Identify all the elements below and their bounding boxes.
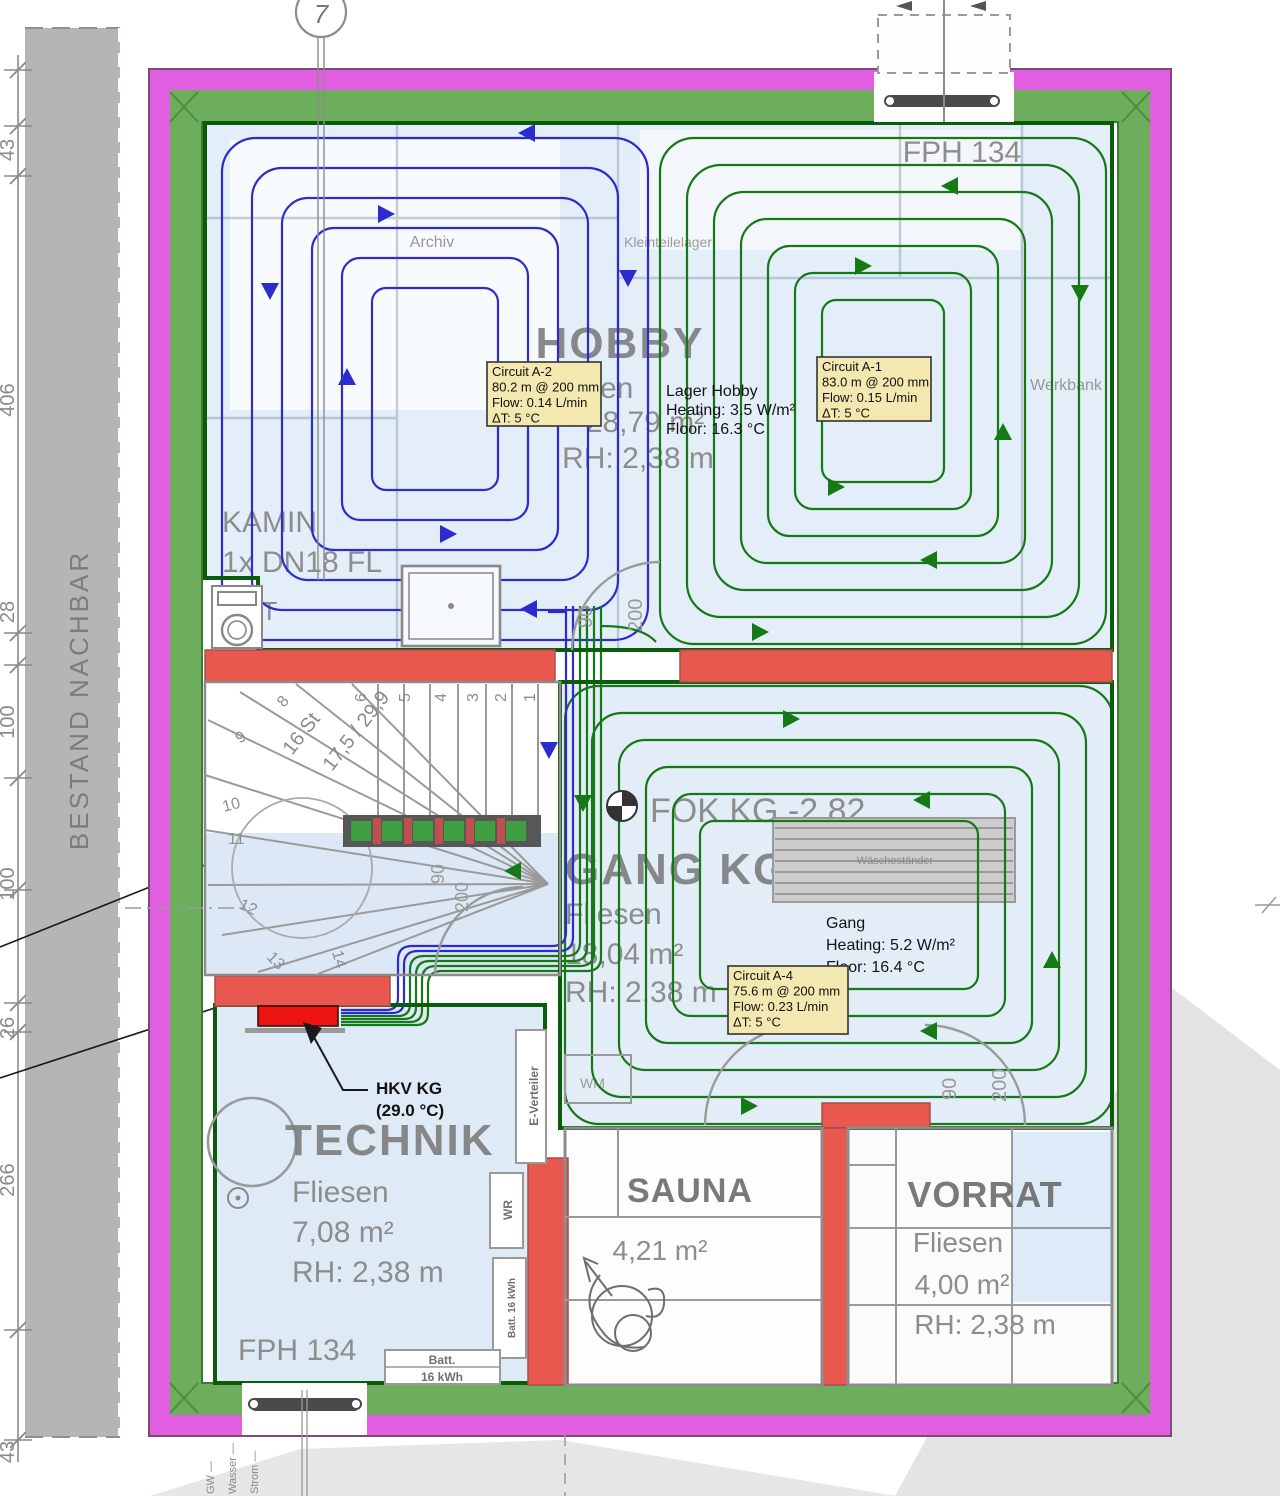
room-title-technik: TECHNIK xyxy=(285,1116,495,1165)
utility-label: GW — xyxy=(205,1461,217,1494)
dimension-value: 26 xyxy=(0,1017,19,1039)
wall-red-4 xyxy=(528,1158,568,1385)
wall-red-6 xyxy=(822,1128,848,1385)
vorrat-rh: RH: 2,38 m xyxy=(914,1309,1056,1340)
stair-step-number: 5 xyxy=(397,693,414,702)
neighbor-label: BESTAND NACHBAR xyxy=(64,550,94,850)
stat-line: Gang xyxy=(826,915,865,932)
vorrat-area: 4,00 m² xyxy=(915,1269,1010,1300)
hobby-rh: RH: 2,38 m xyxy=(562,442,714,475)
dimension-value: 100 xyxy=(0,867,19,900)
circuit-label-line: Circuit A-4 xyxy=(733,968,793,983)
stair-step-number: 3 xyxy=(465,693,482,702)
hkv-label-line1: HKV KG xyxy=(376,1079,442,1098)
circuit-label-line: ΔT: 5 °C xyxy=(733,1015,781,1030)
stat-line: Heating: 5.2 W/m² xyxy=(826,937,956,954)
dimension-value: 43 xyxy=(0,1441,19,1463)
dimension-value: 43 xyxy=(0,139,19,161)
technik-area: 7,08 m² xyxy=(292,1216,394,1249)
utility-label: Wasser — xyxy=(227,1443,239,1494)
dimension-value: 28 xyxy=(0,601,19,623)
manifold-hkv xyxy=(245,1006,345,1033)
utility-label: Strom — xyxy=(249,1451,261,1494)
gang-rh: RH: 2,38 m xyxy=(565,976,717,1009)
stair-step-number: 2 xyxy=(493,693,510,702)
stat-line: Floor: 16.3 °C xyxy=(666,421,765,438)
label-archiv: Archiv xyxy=(410,234,454,251)
circuit-label-line: ΔT: 5 °C xyxy=(822,406,870,421)
door1-width: 90 xyxy=(575,606,597,628)
technik-floor-type: Fliesen xyxy=(292,1176,389,1209)
stat-line: Lager Hobby xyxy=(666,383,758,400)
label-werkbank: Werkbank xyxy=(1030,377,1103,394)
door3-height: 200 xyxy=(989,1069,1011,1102)
circuit-label-a2: Circuit A-280.2 m @ 200 mmFlow: 0.14 L/m… xyxy=(487,362,601,426)
room-title-vorrat: VORRAT xyxy=(907,1174,1062,1215)
kamin-line1: KAMIN xyxy=(222,506,317,539)
battery-label-line1: Batt. xyxy=(429,1353,456,1367)
chimney-symbol xyxy=(402,566,500,646)
dimension-value: 266 xyxy=(0,1163,19,1196)
dimension-value: 406 xyxy=(0,383,19,416)
circuit-label-a4: Circuit A-475.6 m @ 200 mmFlow: 0.23 L/m… xyxy=(728,966,848,1034)
stair-step-number: 1 xyxy=(522,693,539,702)
technik-rh: RH: 2,38 m xyxy=(292,1256,444,1289)
heating-floorplan-drawing: BESTAND NACHBAR 43406281001002626643 xyxy=(0,0,1280,1496)
stat-line: Heating: 3.5 W/m² xyxy=(666,402,796,419)
wr-label: WR xyxy=(501,1200,515,1220)
floorplan-page: BESTAND NACHBAR 43406281001002626643 xyxy=(0,0,1280,1496)
manifold-body xyxy=(258,1006,338,1026)
circuit-label-line: 83.0 m @ 200 mm xyxy=(822,375,929,390)
wall-red-5 xyxy=(822,1103,930,1128)
sauna-area: 4,21 m² xyxy=(613,1235,708,1266)
technik-fph: FPH 134 xyxy=(238,1334,356,1367)
window-bottom-technik xyxy=(242,1383,367,1435)
door2-width: 90 xyxy=(428,864,448,884)
rack-label: Wäscheständer xyxy=(857,855,934,867)
circuit-label-line: Flow: 0.23 L/min xyxy=(733,999,828,1014)
fok-marker-icon xyxy=(607,791,637,821)
washer-symbol xyxy=(212,586,262,648)
circuit-label-a1: Circuit A-183.0 m @ 200 mmFlow: 0.15 L/m… xyxy=(817,357,931,421)
circuit-label-line: ΔT: 5 °C xyxy=(492,411,540,426)
stair-step-number: 11 xyxy=(228,831,245,848)
site-shading-bottom xyxy=(150,1440,897,1496)
circuit-label-line: Circuit A-1 xyxy=(822,359,882,374)
window-top-right xyxy=(874,0,1014,122)
axis-label: 7 xyxy=(314,0,330,29)
label-kleinteilelager: Kleinteilelager xyxy=(624,234,712,250)
circuit-label-line: 75.6 m @ 200 mm xyxy=(733,984,840,999)
wall-red-3 xyxy=(215,976,390,1006)
wall-red-1 xyxy=(205,650,555,682)
circuit-label-line: Circuit A-2 xyxy=(492,364,552,379)
room-title-gang: GANG KG xyxy=(565,845,789,894)
utility-entry-labels: GW —Wasser —Strom — xyxy=(205,1443,261,1494)
dimension-value: 100 xyxy=(0,705,19,738)
room-title-hobby: HOBBY xyxy=(536,319,705,368)
door3-width: 90 xyxy=(939,1078,961,1100)
neighbor-building: BESTAND NACHBAR xyxy=(25,28,120,1437)
door2-height: 200 xyxy=(452,882,472,912)
door1-height: 200 xyxy=(625,599,647,632)
e-verteiler-label: E-Verteiler xyxy=(527,1066,541,1126)
room-title-sauna: SAUNA xyxy=(627,1172,753,1210)
circuit-label-line: Flow: 0.14 L/min xyxy=(492,395,587,410)
vorrat-floor-type: Fliesen xyxy=(913,1227,1003,1258)
circuit-label-line: Flow: 0.15 L/min xyxy=(822,390,917,405)
circuit-label-line: 80.2 m @ 200 mm xyxy=(492,380,599,395)
stair-step-number: 4 xyxy=(433,693,450,702)
battery-vertical-label: Batt. 16 kWh xyxy=(507,1278,518,1338)
battery-label-line2: 16 kWh xyxy=(421,1370,463,1384)
pipe-sleeve-band xyxy=(343,815,541,847)
wall-red-2 xyxy=(680,650,1112,682)
